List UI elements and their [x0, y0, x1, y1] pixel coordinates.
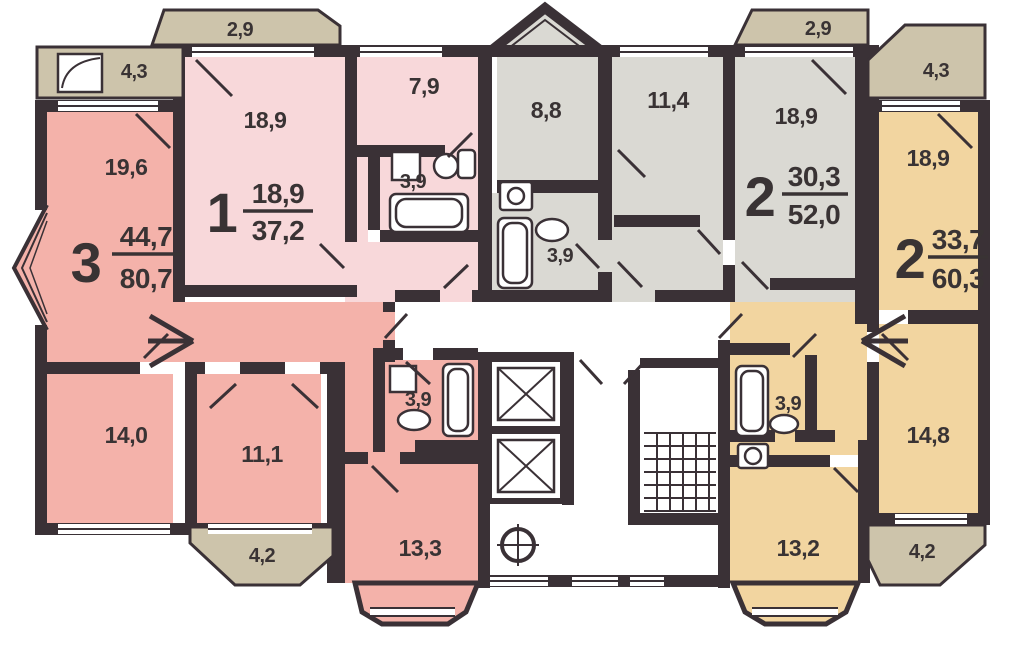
toilet-bowl — [745, 448, 761, 464]
bathtub-inner — [741, 371, 763, 431]
balcony-area-label: 4,3 — [923, 60, 950, 82]
sink-icon — [770, 415, 798, 433]
balcony-area-label: 2,9 — [227, 19, 254, 41]
total-area: 60,3 — [932, 263, 985, 294]
kitchen-13-3-bay — [355, 583, 478, 624]
room-14-0 — [47, 374, 173, 523]
elevator-shafts — [489, 359, 563, 501]
room-area-label: 3,9 — [405, 389, 432, 411]
apartment-2-gray-fills — [490, 14, 855, 302]
floor-plan-svg: 19,6 14,0 11,1 13,3 3,9 18,9 7,9 3,9 8,8… — [0, 0, 1024, 645]
total-area: 80,7 — [120, 263, 173, 294]
living-area: 44,7 — [120, 221, 173, 252]
room-area-label: 13,2 — [777, 535, 820, 561]
total-area: 37,2 — [252, 215, 305, 246]
kitchen-7-9 — [357, 57, 478, 145]
room-area-label: 11,4 — [647, 87, 689, 113]
room-area-label: 7,9 — [409, 73, 439, 99]
apartment-1-label: 1 18,9 37,2 — [207, 178, 313, 246]
balcony-top-right — [735, 10, 868, 45]
balcony-area-label: 4,2 — [249, 545, 276, 567]
room-area-label: 11,1 — [241, 441, 283, 467]
room-area-label: 3,9 — [547, 245, 574, 267]
room-area-label: 18,9 — [244, 107, 287, 133]
room-11-4 — [612, 57, 723, 215]
apartment-number: 2 — [895, 227, 926, 290]
gray-hall — [612, 193, 723, 302]
apartment-number: 3 — [71, 231, 102, 294]
room-area-label: 13,3 — [399, 535, 442, 561]
room-area-label: 14,0 — [105, 422, 148, 448]
apartment-2-gray-label: 2 30,3 52,0 — [745, 161, 848, 230]
bathtub-inner — [503, 223, 527, 283]
room-14-8 — [879, 324, 978, 513]
sink-icon — [536, 219, 568, 241]
balcony-area-label: 4,2 — [909, 541, 936, 563]
room-area-label: 3,9 — [400, 171, 427, 193]
room-area-label: 14,8 — [907, 422, 950, 448]
bathtub-inner — [448, 369, 468, 431]
room-18-9-apt1 — [185, 57, 345, 285]
room-area-label: 18,9 — [775, 103, 818, 129]
loggia-door-scheme — [58, 54, 102, 92]
floor-plan: 19,6 14,0 11,1 13,3 3,9 18,9 7,9 3,9 8,8… — [0, 0, 1024, 645]
room-area-label: 3,9 — [775, 393, 802, 415]
gray-fill — [598, 240, 612, 272]
room-area-label: 19,6 — [105, 154, 148, 180]
room-area-label: 8,8 — [531, 97, 562, 123]
living-area: 30,3 — [788, 161, 841, 192]
kitchen-13-2-bay — [733, 583, 858, 624]
room-area-label: 18,9 — [907, 145, 950, 171]
sink-icon — [434, 154, 458, 178]
kitchen-13-2 — [730, 467, 858, 583]
apartment-number: 2 — [745, 165, 776, 228]
apartment-number: 1 — [207, 181, 238, 244]
sink-icon — [398, 410, 430, 430]
toilet-icon — [458, 150, 475, 178]
toilet-bowl — [508, 188, 524, 204]
living-area: 18,9 — [252, 178, 305, 209]
living-area: 33,7 — [932, 224, 985, 255]
total-area: 52,0 — [788, 199, 841, 230]
balcony-area-label: 4,3 — [121, 61, 148, 83]
balcony-area-label: 2,9 — [805, 18, 832, 40]
bathtub-inner — [396, 199, 462, 227]
